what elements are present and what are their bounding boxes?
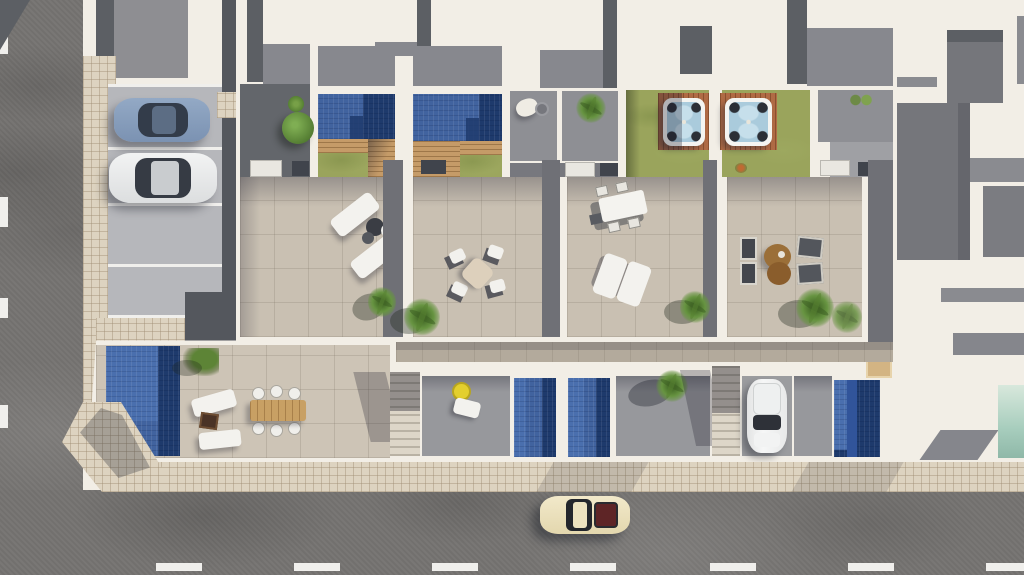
- palm-plant: [796, 288, 834, 328]
- cream-car-street: [540, 496, 630, 534]
- ac-unit-dark: [600, 163, 618, 176]
- palm-plant: [404, 298, 440, 336]
- lane-marking: [0, 197, 8, 227]
- blue-car: [114, 98, 210, 142]
- roof-light-block: [114, 0, 188, 78]
- sofa-bench: [740, 262, 757, 285]
- neighbor-band: [897, 77, 937, 87]
- palm-plant: [576, 93, 606, 123]
- white-car-driveway: [747, 379, 787, 453]
- neighbor-gray-tower-edge: [958, 103, 970, 260]
- neighbor-vthin: [1017, 16, 1024, 84]
- armchair: [796, 262, 823, 285]
- wall-shadow: [727, 177, 862, 207]
- roofband-notch: [680, 26, 712, 74]
- patio-plants: [850, 94, 872, 106]
- roofband-vdark-1: [417, 0, 431, 46]
- lawn-3-shade: [626, 90, 640, 177]
- parking-line: [108, 264, 222, 267]
- edge-strip-right: [868, 160, 893, 352]
- palm-plant: [832, 300, 862, 334]
- roofband-vdark-3: [787, 0, 807, 84]
- roof-gap-white: [83, 0, 96, 56]
- car-windshield: [753, 415, 781, 430]
- wood-dining-table: [250, 400, 306, 421]
- sidewalk-shade-1: [536, 462, 648, 492]
- roofband-deck-pool1: [318, 46, 395, 86]
- ground-pool-4-light: [834, 380, 847, 450]
- fire-pit: [199, 412, 219, 430]
- lane-marking: [848, 563, 894, 571]
- aerial-site-plan: [0, 0, 1024, 575]
- dining-chair-round: [252, 387, 265, 400]
- roofband-deck-u1: [263, 44, 310, 84]
- rooftop-pool-2-step: [466, 118, 479, 141]
- pouf-dot: [778, 251, 785, 258]
- lawn-2: [460, 155, 502, 177]
- dining-chair-round: [252, 422, 265, 435]
- roofband-deck-right: [807, 28, 893, 86]
- patio-unit4-ground: [794, 376, 832, 456]
- sofa-bench: [740, 237, 757, 260]
- dining-chair-round: [288, 387, 301, 400]
- rooftop-pool-2-shadow: [479, 94, 502, 141]
- white-car-roof: [151, 161, 179, 195]
- hot-tub-2-water: [729, 102, 768, 142]
- ground-pool-2-light: [514, 378, 526, 457]
- cream-car-rear-glass: [594, 502, 618, 528]
- rooftop-pool-1-step: [350, 116, 363, 139]
- wall-shadow: [794, 376, 832, 392]
- roofband-deck-mid: [540, 50, 603, 88]
- flower-plant: [735, 163, 747, 173]
- lane-marking: [294, 563, 340, 571]
- rooftop-pool-1-shadow: [363, 94, 395, 139]
- car-hood: [754, 433, 780, 447]
- parking-line: [108, 203, 222, 206]
- dining-chair-round: [270, 385, 283, 398]
- lane-marking: [710, 563, 756, 571]
- patio-chair-round: [535, 102, 549, 116]
- roofband-deck-pool2: [413, 46, 502, 86]
- ac-unit-white: [565, 162, 595, 177]
- lane-marking: [156, 563, 202, 571]
- staircase: [390, 372, 420, 456]
- side-table-dark: [362, 232, 374, 244]
- ground-pool-3-light: [568, 378, 584, 457]
- blue-car-roof: [152, 106, 176, 134]
- tree-large: [282, 112, 314, 144]
- roofband-shadow-left: [247, 0, 263, 82]
- armchair: [796, 236, 824, 260]
- lane-marking: [0, 405, 8, 428]
- stairs-shade: [712, 366, 740, 413]
- ground-pool-3-dark: [596, 378, 610, 457]
- neighbor-pool-teal: [998, 385, 1024, 458]
- ac-unit-white: [820, 160, 850, 176]
- roofband-vdark-2: [603, 0, 617, 88]
- palm-plant: [368, 286, 396, 318]
- neighbor-band-4: [953, 333, 1024, 355]
- hot-tub-2: [725, 98, 772, 146]
- ac-unit-white: [250, 160, 282, 177]
- neighbor-band-2: [970, 158, 1024, 182]
- neighbor-roof-dark-edge: [947, 30, 1003, 42]
- ground-pool-2-dark: [542, 378, 556, 457]
- ground-pool-4-mid: [847, 380, 857, 457]
- neighbor-band-3: [941, 288, 1024, 302]
- lane-marking: [570, 563, 616, 571]
- sidewalk-shade-2: [791, 462, 903, 492]
- divider-strip: [542, 160, 560, 337]
- parking-line: [108, 84, 222, 87]
- lane-marking: [0, 298, 8, 318]
- road-left: [0, 0, 83, 575]
- lane-marking: [986, 563, 1024, 571]
- wood-deck-2: [460, 141, 502, 155]
- dining-chair-round: [288, 422, 301, 435]
- cream-car-roof: [573, 502, 587, 528]
- car-roof: [753, 383, 781, 415]
- tree-small: [288, 96, 304, 112]
- white-car-parked: [109, 153, 217, 203]
- palm-plant: [680, 290, 710, 324]
- round-pouf: [767, 262, 791, 285]
- hot-tub-1-shade: [658, 93, 682, 150]
- bush-shadow: [172, 360, 202, 376]
- neighbor-gray-low: [983, 186, 1024, 257]
- parking-line: [108, 147, 222, 150]
- wall-shadow: [413, 177, 542, 207]
- lane-marking: [432, 563, 478, 571]
- ac-unit-dark: [292, 161, 309, 176]
- staircase: [712, 366, 740, 456]
- stairs-shade: [390, 372, 420, 411]
- wall-shadow: [240, 177, 260, 337]
- ac-unit-dark: [421, 160, 446, 174]
- dining-chair-round: [270, 424, 283, 437]
